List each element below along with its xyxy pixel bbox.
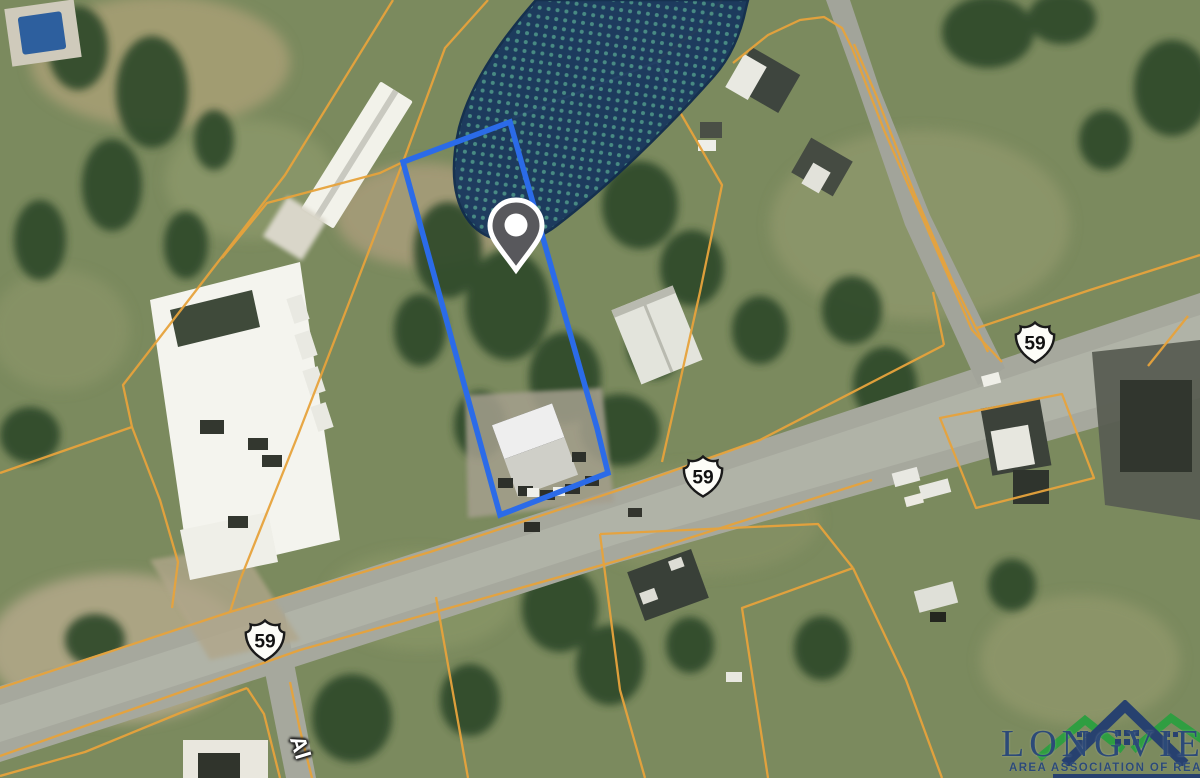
route-number: 59 xyxy=(1024,334,1045,355)
map-canvas[interactable]: 59 59 59 Al LONGVIEW AREA ASSOCI xyxy=(0,0,1200,778)
route-shield-us59-west: 59 xyxy=(241,618,289,663)
us-route-shield-icon: 59 xyxy=(1011,320,1059,365)
aerial-imagery xyxy=(0,0,1200,778)
brand-underline-bar xyxy=(1053,774,1200,778)
route-shield-us59-east: 59 xyxy=(1011,320,1059,365)
route-number: 59 xyxy=(692,468,713,489)
brand-tagline: AREA ASSOCIATION OF REALTORS® xyxy=(1009,762,1200,774)
us-route-shield-icon: 59 xyxy=(241,618,289,663)
us-route-shield-icon: 59 xyxy=(679,454,727,499)
route-shield-us59-center: 59 xyxy=(679,454,727,499)
route-number: 59 xyxy=(254,632,275,653)
brand-name: LONGVIEW xyxy=(1001,722,1200,766)
